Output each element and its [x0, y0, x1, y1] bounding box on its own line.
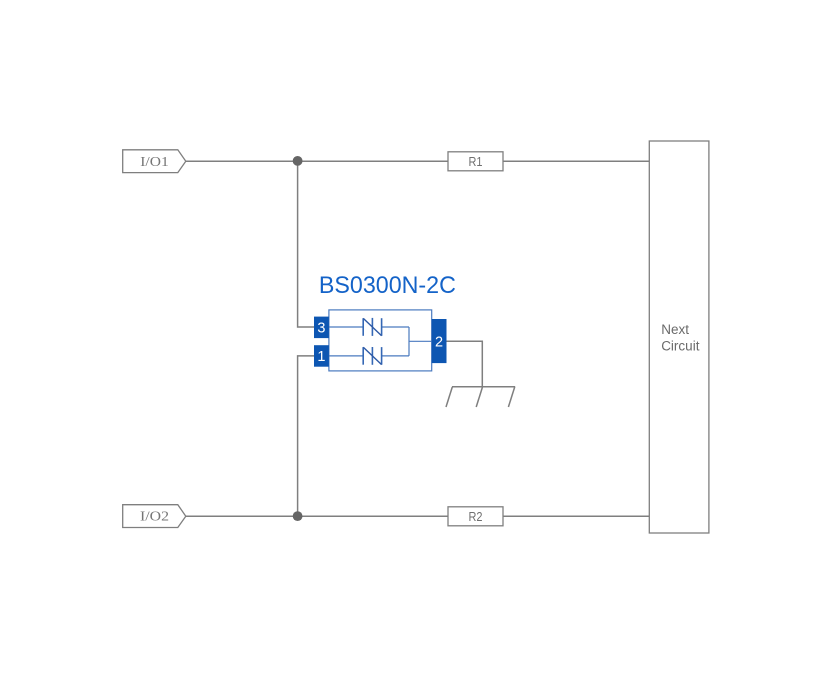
svg-text:I/O1: I/O1 — [140, 155, 169, 170]
svg-text:Circuit: Circuit — [661, 339, 700, 354]
svg-text:I/O2: I/O2 — [140, 510, 169, 525]
svg-text:BS0300N-2C: BS0300N-2C — [319, 272, 456, 299]
svg-text:R2: R2 — [469, 509, 483, 524]
svg-text:1: 1 — [317, 349, 325, 365]
svg-text:R1: R1 — [469, 154, 483, 169]
svg-text:Next: Next — [661, 322, 689, 337]
svg-text:2: 2 — [435, 335, 443, 351]
svg-text:3: 3 — [317, 321, 325, 337]
